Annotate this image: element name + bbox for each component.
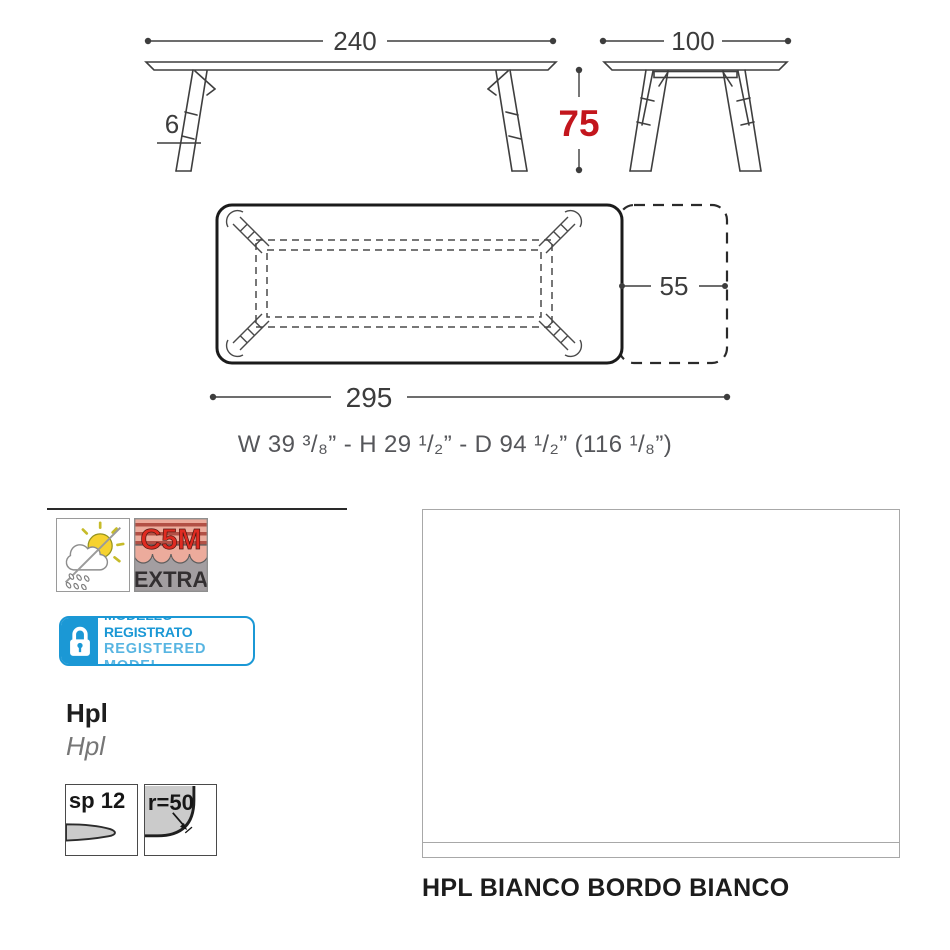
side-right-leg [723,70,761,171]
plan-tabletop [217,205,622,363]
padlock-icon [65,622,95,660]
corner-radius-icon: r=50 [144,784,217,856]
extra-label: EXTRA [134,567,208,592]
edge-thickness-icon: sp 12 [65,784,138,856]
radius-label: r=50 [148,790,194,815]
material-subtitle: Hpl [66,731,105,762]
lock-box [61,618,98,664]
extension-label: 55 [660,271,689,301]
total-length-label: 295 [346,382,393,413]
technical-drawing: 240 6 [0,0,950,470]
dimension-total-295: 295 [210,382,730,413]
sun-rain-icon [57,519,128,590]
front-width-label: 240 [333,26,376,56]
front-thickness-label: 6 [165,109,179,139]
material-title: Hpl [66,698,108,729]
edge-profile-icon: sp 12 [66,785,136,854]
c5m-extra-corrosion-icon: C5M EXTRA [134,518,208,592]
side-tabletop [604,62,787,70]
imperial-dimensions-text: W 39 ³/₈” - H 29 ¹/₂” - D 94 ¹/₂” (116 ¹… [130,431,780,459]
badge-line-italian: MODELLO REGISTRATO [104,616,253,641]
front-tabletop [146,62,556,70]
product-spec-sheet: { "colors": { "accent_red": "#c3161d", "… [0,0,950,950]
registered-model-badge: MODELLO REGISTRATO REGISTERED MODEL [59,616,255,666]
front-right-leg [488,70,527,171]
dimension-extension-55: 55 [619,271,728,301]
badge-line-english: REGISTERED MODEL [104,641,253,666]
front-left-leg [176,70,215,171]
plan-view: 55 295 [210,205,730,413]
swatch-caption: HPL BIANCO BORDO BIANCO [422,874,790,903]
c5m-extra-icon: C5M EXTRA [134,518,208,592]
side-left-leg [630,70,668,171]
outdoor-weather-icon [56,518,130,592]
dimension-width-240: 240 [145,26,556,56]
front-elevation-view: 240 6 [145,26,600,173]
side-depth-label: 100 [671,26,714,56]
c5m-label: C5M [140,524,201,556]
finish-swatch [422,509,900,858]
dimension-height-75: 75 [558,67,599,173]
side-elevation-view: 100 [600,26,791,171]
height-label-red: 75 [558,103,599,144]
dimension-depth-100: 100 [600,26,791,56]
section-divider [47,508,347,510]
radius-diagram-icon: r=50 [145,785,215,854]
thickness-label: sp 12 [69,788,125,813]
swatch-edge-line [423,842,899,843]
badge-text: MODELLO REGISTRATO REGISTERED MODEL [98,618,253,664]
